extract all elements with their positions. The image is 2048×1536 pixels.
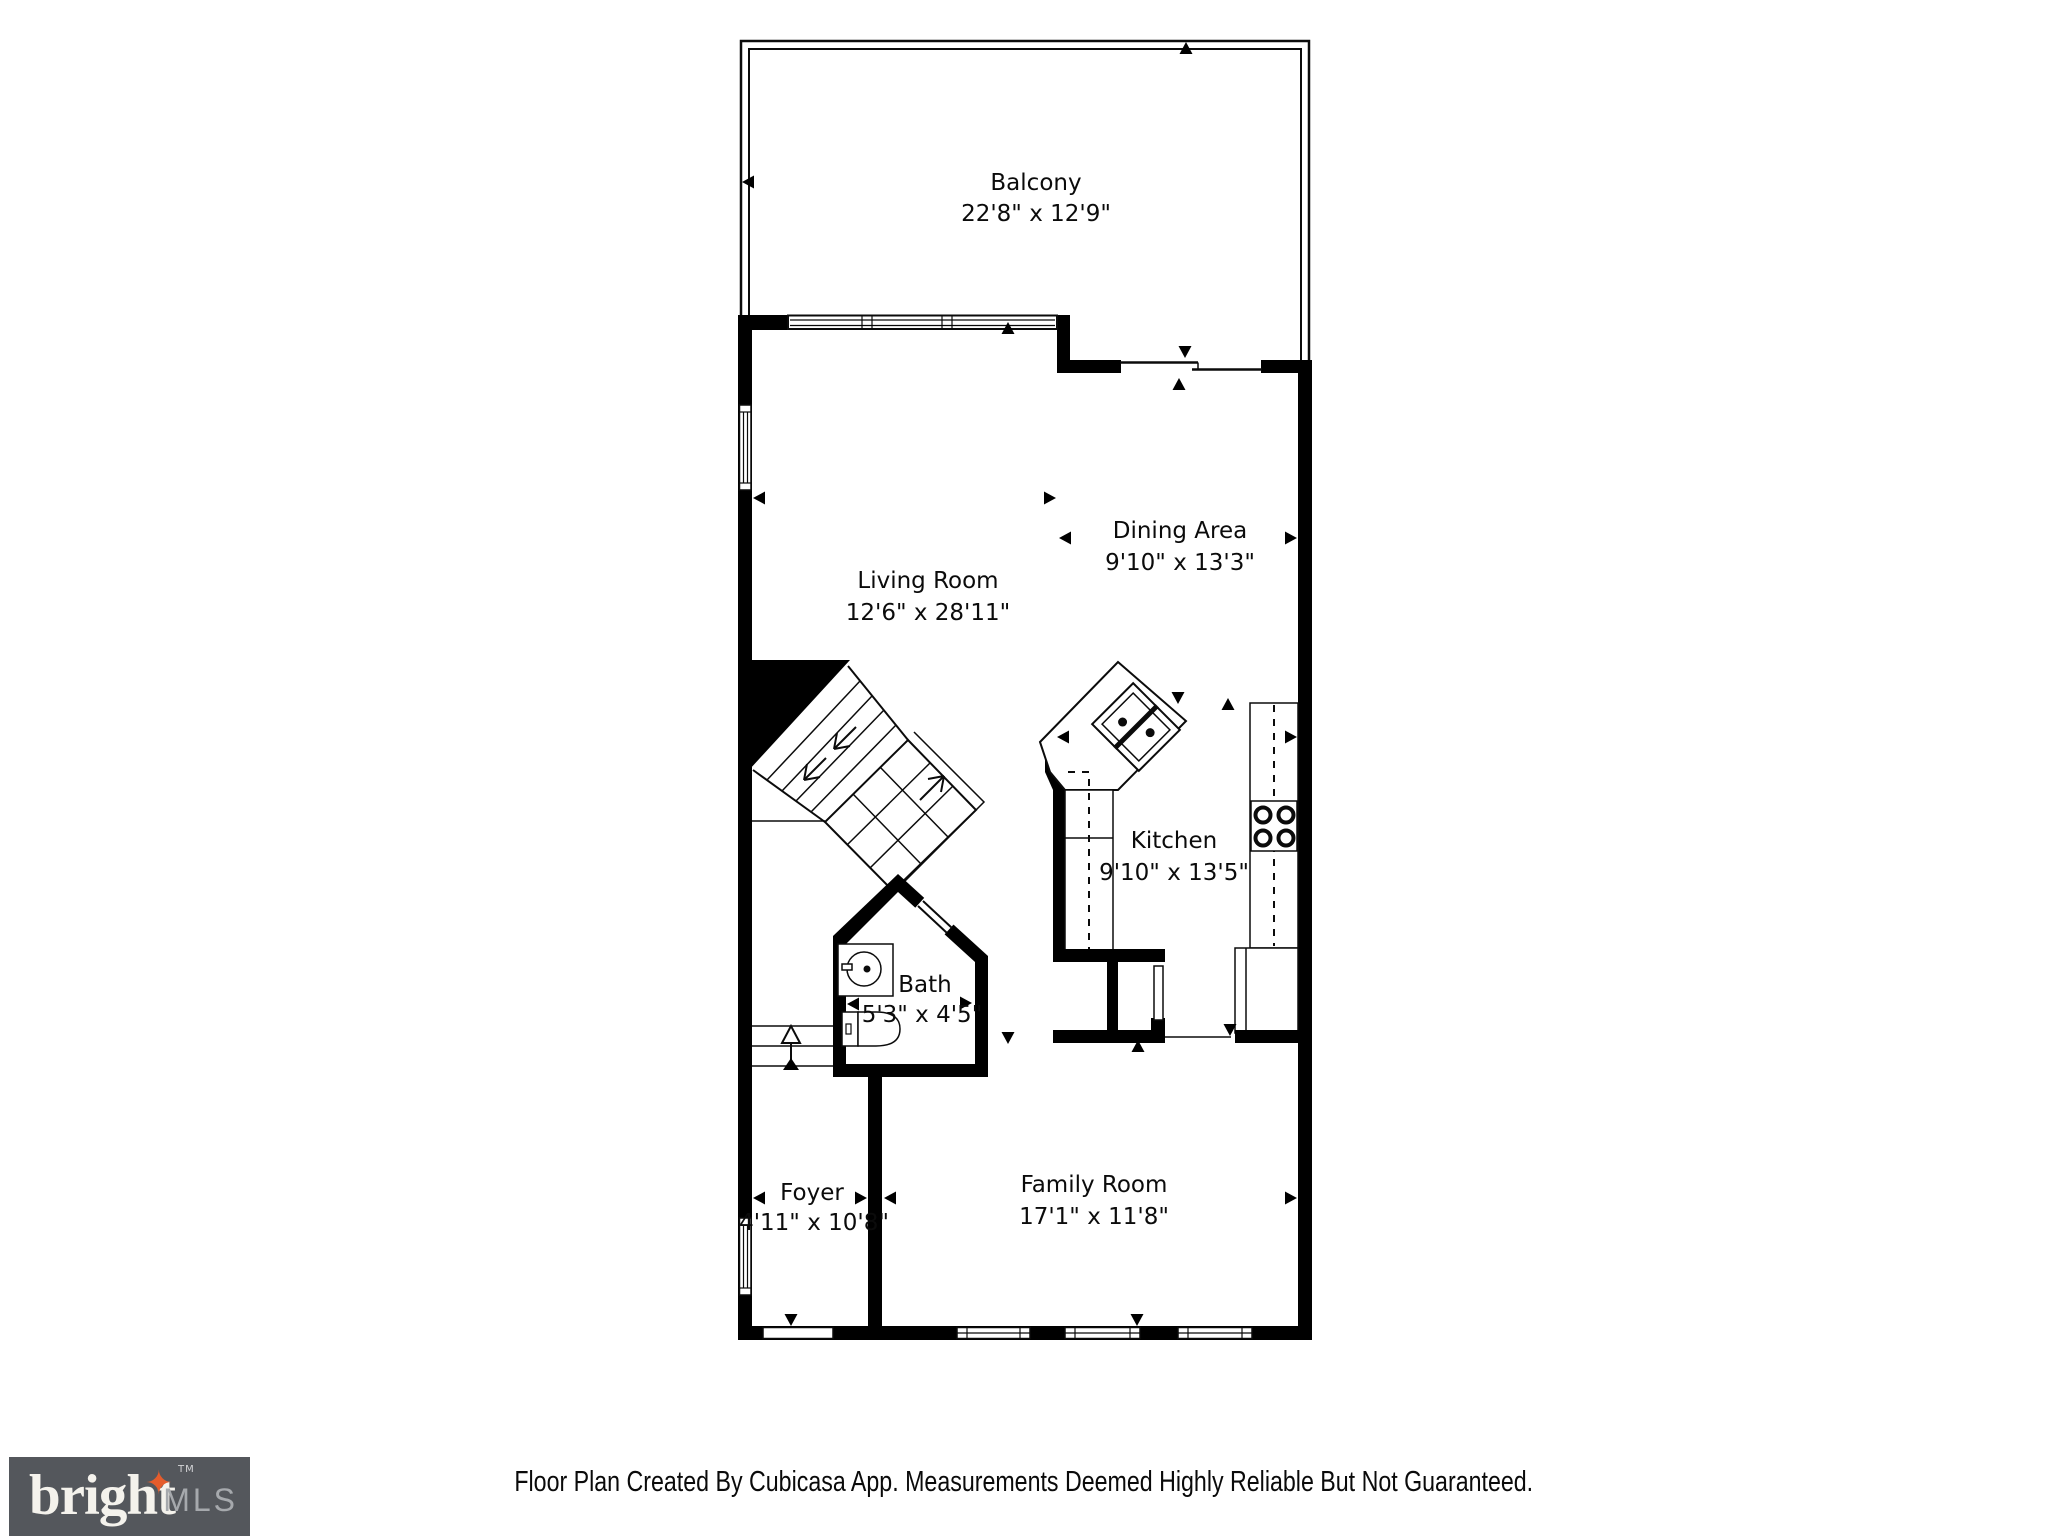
- family-room-windows: [957, 1328, 1252, 1339]
- footer-disclaimer-text: Floor Plan Created By Cubicasa App. Meas…: [515, 1466, 1534, 1499]
- stairs: [738, 660, 984, 891]
- cooktop-icon: [1251, 801, 1297, 851]
- dining-area-dims: 9'10" x 13'3": [1105, 550, 1255, 576]
- foyer-dims: 4'11" x 10'8": [739, 1210, 889, 1236]
- balcony-label: Balcony: [990, 170, 1081, 196]
- floor-plan-drawing: Balcony 22'8" x 12'9" Living Room 12'6" …: [0, 0, 2048, 1536]
- bath-dims: 5'3" x 4'5": [862, 1002, 983, 1028]
- entrance-arrow-icon: [782, 1026, 800, 1070]
- living-room-balcony-sliding-door: [788, 316, 1057, 330]
- kitchen-dims: 9'10" x 13'5": [1099, 860, 1249, 886]
- vanity-sink-icon: [838, 944, 893, 996]
- dining-area-label: Dining Area: [1113, 518, 1248, 544]
- family-room-label: Family Room: [1021, 1172, 1168, 1198]
- bath-label: Bath: [898, 972, 951, 998]
- living-room-label: Living Room: [857, 568, 998, 594]
- foyer-label: Foyer: [780, 1180, 844, 1206]
- balcony-dims: 22'8" x 12'9": [961, 201, 1111, 227]
- living-room-dims: 12'6" x 28'11": [846, 600, 1010, 626]
- foyer-family-divider-wall: [868, 1077, 882, 1328]
- dining-balcony-sliding-door: [1120, 360, 1262, 373]
- kitchen-label: Kitchen: [1131, 828, 1217, 854]
- foyer-entry-sill: [763, 1328, 833, 1339]
- floor-plan-page: Balcony 22'8" x 12'9" Living Room 12'6" …: [0, 0, 2048, 1536]
- family-room-dims: 17'1" x 11'8": [1019, 1204, 1169, 1230]
- footer-disclaimer: Floor Plan Created By Cubicasa App. Meas…: [0, 1466, 2048, 1499]
- living-room-window: [740, 405, 752, 490]
